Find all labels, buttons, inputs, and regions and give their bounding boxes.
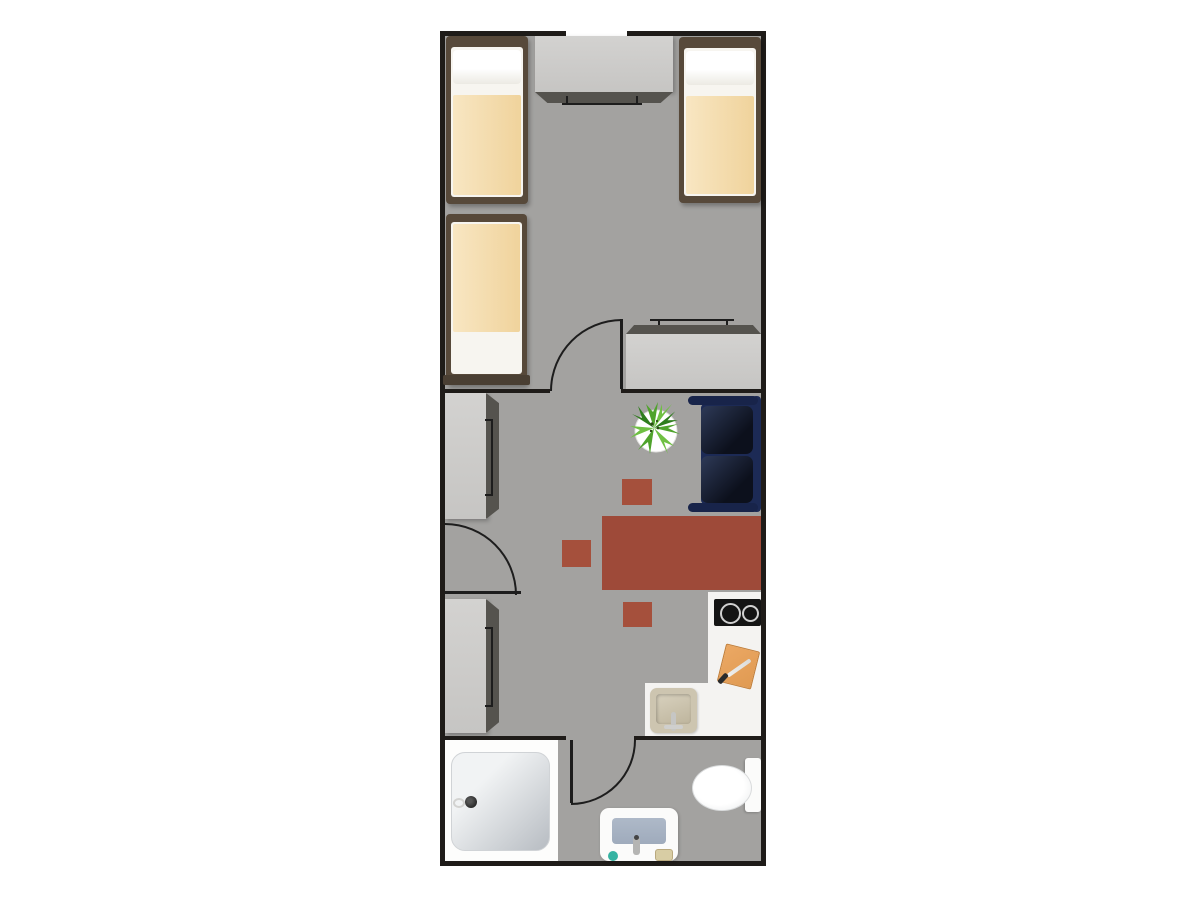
shower-tray	[451, 752, 550, 851]
bed-pillow	[686, 51, 754, 85]
burner-small	[742, 605, 759, 622]
single-bed-right	[679, 37, 761, 203]
sofa-armrest-top	[688, 396, 758, 405]
wardrobe-rail	[562, 103, 642, 105]
bed-mattress	[451, 47, 523, 197]
cabinet-handle	[491, 419, 493, 496]
kitchen-sink	[650, 688, 697, 733]
soap-bar	[655, 849, 673, 861]
cabinet-lower-door	[486, 599, 499, 733]
apartment-outline	[440, 31, 766, 866]
single-bed-middle	[446, 214, 527, 385]
dining-table	[602, 516, 761, 590]
washbasin-vanity	[600, 808, 678, 861]
stool	[562, 540, 591, 567]
bed-blanket	[453, 95, 521, 195]
bed-blanket	[453, 224, 520, 332]
bedroom-door-swing	[550, 319, 622, 391]
stool	[623, 602, 652, 627]
sink-faucet-base	[664, 725, 683, 729]
bed-mattress	[684, 48, 756, 196]
bed-pillow	[453, 50, 521, 84]
dresser-body	[626, 334, 761, 389]
entry-door-swing	[445, 523, 517, 595]
bed-mattress	[451, 222, 522, 374]
sofa-backrest	[752, 396, 761, 512]
cabinet-upper	[445, 393, 487, 519]
shower-drain	[465, 796, 477, 808]
wardrobe-front	[535, 92, 673, 103]
cabinet-upper-door	[486, 393, 499, 519]
potted-plant	[628, 402, 684, 458]
bathroom-door-swing	[571, 740, 636, 805]
single-bed-left	[446, 36, 528, 204]
vanity-faucet-knob	[634, 835, 639, 840]
wardrobe-body	[535, 36, 673, 92]
sofa	[688, 396, 761, 512]
soap-dish-round	[608, 851, 618, 861]
cabinet-handle	[491, 627, 493, 707]
shower-drain-cover	[453, 798, 465, 808]
sofa-armrest-bottom	[688, 503, 758, 512]
dresser-rail	[650, 319, 734, 321]
dresser	[626, 319, 761, 389]
wardrobe-top	[535, 36, 673, 108]
stool	[622, 479, 652, 505]
toilet-bowl	[692, 765, 752, 811]
cabinet-lower	[445, 599, 487, 733]
wall-living-bath-right	[634, 736, 761, 740]
cooktop	[714, 599, 761, 626]
wall-bedroom-living-right	[621, 389, 761, 393]
floorplan-canvas	[0, 0, 1200, 900]
bed-blanket	[686, 96, 754, 194]
dresser-front	[626, 325, 761, 334]
burner-large	[720, 603, 741, 624]
sofa-cushion	[701, 406, 753, 454]
sofa-cushion	[701, 456, 753, 503]
bed-footboard	[443, 375, 530, 385]
